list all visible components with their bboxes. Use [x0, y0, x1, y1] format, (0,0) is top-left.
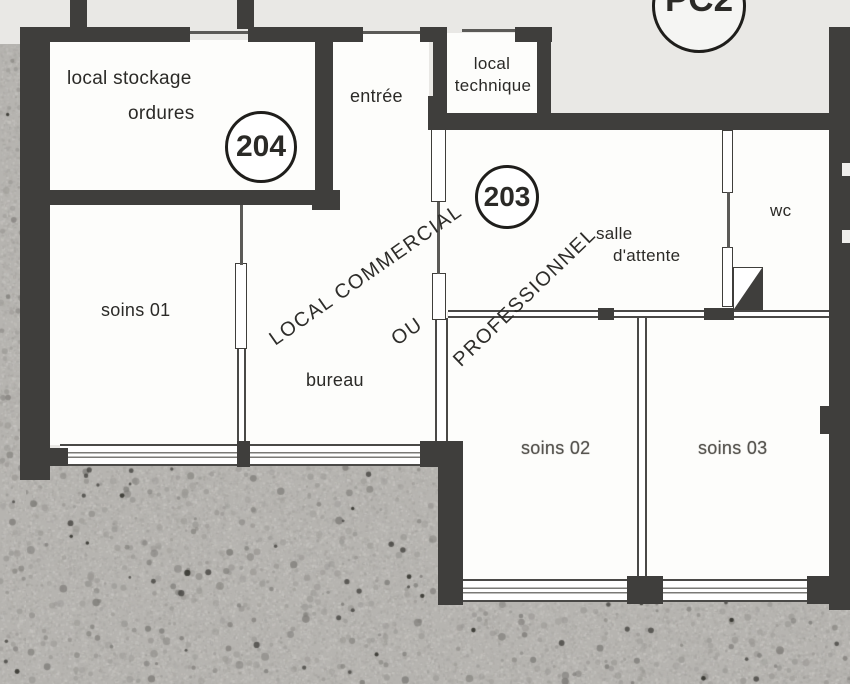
- partition-wall: [637, 318, 647, 580]
- room-label-salle-line2: d'attente: [613, 246, 680, 266]
- wall-segment: [48, 190, 340, 205]
- wall-segment: [237, 441, 250, 467]
- wall-segment: [829, 27, 850, 610]
- room-label-soins-01: soins 01: [101, 300, 170, 321]
- wall-segment: [438, 443, 463, 605]
- wall-segment: [50, 448, 68, 466]
- room-label-local-stockage-line2: ordures: [128, 103, 195, 125]
- door-leaf: [235, 263, 247, 349]
- wall-segment: [428, 96, 447, 115]
- room-label-local-stockage-line1: local stockage: [67, 68, 192, 90]
- window: [60, 444, 237, 466]
- wall-segment: [807, 576, 835, 604]
- door-leaf: [431, 126, 446, 202]
- wall-segment: [537, 27, 551, 115]
- wall-notch: [842, 230, 850, 243]
- wall-line: [727, 192, 730, 248]
- room-label-local-technique-line2: technique: [446, 76, 540, 96]
- unit-number-204: 204: [236, 130, 286, 164]
- door-leaf: [722, 130, 733, 193]
- wall-segment: [237, 0, 254, 29]
- room-label-wc: wc: [770, 201, 791, 221]
- window: [663, 579, 807, 602]
- door-swing-icon: [734, 268, 762, 309]
- wall-notch: [842, 163, 850, 176]
- unit-number-203: 203: [484, 181, 531, 213]
- floor-plan: local stockage ordures 204 entrée local …: [0, 0, 850, 684]
- wall-segment: [315, 27, 333, 205]
- window: [463, 579, 627, 602]
- wall-line: [462, 29, 518, 32]
- room-area: [447, 33, 537, 115]
- unit-number-203-badge: 203: [475, 165, 539, 229]
- wall-segment: [627, 576, 663, 604]
- window: [250, 444, 420, 466]
- door-leaf: [722, 247, 733, 307]
- wall-segment: [428, 113, 830, 130]
- door-leaf: [432, 273, 446, 320]
- wall-segment: [248, 27, 363, 42]
- wall-segment: [20, 30, 50, 480]
- partition-wall: [435, 318, 448, 445]
- wall-line: [240, 205, 243, 265]
- plan-reference-pc2: PC2: [655, 0, 743, 20]
- wall-segment: [598, 308, 614, 320]
- room-label-local-technique-line1: local: [447, 54, 537, 74]
- room-label-soins-02: soins 02: [521, 438, 590, 459]
- room-label-soins-03: soins 03: [698, 438, 767, 459]
- room-label-salle-line1: salle: [596, 224, 632, 244]
- wall-segment: [820, 406, 829, 434]
- room-area: [333, 33, 429, 207]
- wall-segment: [70, 0, 87, 29]
- room-label-entree: entrée: [350, 86, 403, 107]
- partition-wall: [237, 348, 246, 444]
- unit-number-204-badge: 204: [225, 111, 297, 183]
- wall-line: [190, 31, 248, 34]
- wall-line: [363, 31, 420, 34]
- room-label-bureau: bureau: [306, 370, 364, 391]
- wall-segment: [704, 308, 734, 320]
